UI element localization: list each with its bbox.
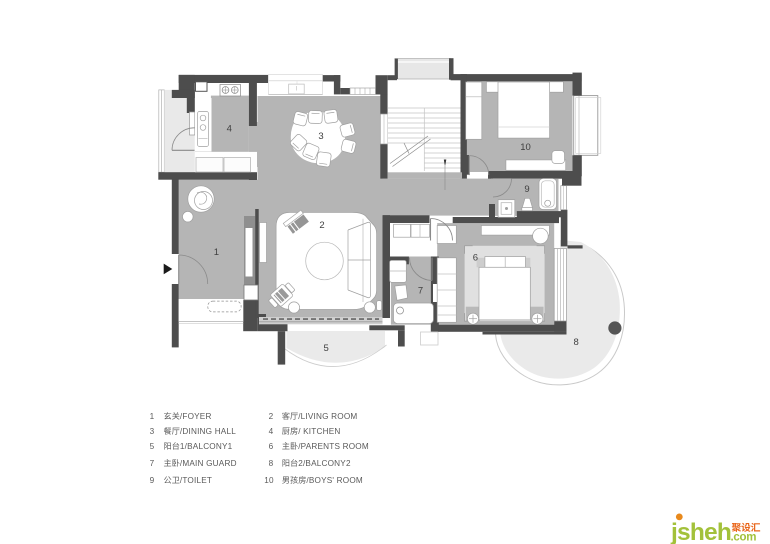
svg-text:2: 2 <box>269 412 274 421</box>
svg-text:7: 7 <box>418 286 423 297</box>
svg-text:8: 8 <box>573 337 578 348</box>
svg-text:9: 9 <box>524 184 529 195</box>
svg-text:1/BALCONY1: 1/BALCONY1 <box>180 442 233 451</box>
svg-text:10: 10 <box>264 476 274 485</box>
svg-text:/FOYER: /FOYER <box>180 412 212 421</box>
svg-text:2: 2 <box>319 220 324 231</box>
svg-text:5: 5 <box>150 442 155 451</box>
svg-text:/PARENTS ROOM: /PARENTS ROOM <box>298 442 369 451</box>
svg-text:3: 3 <box>318 131 323 142</box>
svg-text:/BOYS' ROOM: /BOYS' ROOM <box>306 476 363 485</box>
svg-text:4: 4 <box>269 427 274 436</box>
svg-text:1: 1 <box>214 247 219 258</box>
svg-text:10: 10 <box>520 142 531 153</box>
svg-text:/MAIN GUARD: /MAIN GUARD <box>180 459 237 468</box>
svg-text:.com: .com <box>731 532 757 544</box>
svg-text:6: 6 <box>473 253 478 264</box>
svg-text:/TOILET: /TOILET <box>180 476 212 485</box>
svg-text:3: 3 <box>150 427 155 436</box>
svg-text:2/BALCONY2: 2/BALCONY2 <box>298 459 351 468</box>
svg-text:/DINING HALL: /DINING HALL <box>180 427 236 436</box>
svg-text:8: 8 <box>269 459 274 468</box>
svg-text:9: 9 <box>150 476 155 485</box>
svg-text:6: 6 <box>269 442 274 451</box>
svg-text:4: 4 <box>227 124 232 135</box>
svg-text:5: 5 <box>324 343 329 354</box>
svg-text:/ KITCHEN: / KITCHEN <box>298 427 340 436</box>
svg-text:/LIVING ROOM: /LIVING ROOM <box>298 412 357 421</box>
svg-text:7: 7 <box>150 459 155 468</box>
svg-text:jsheh: jsheh <box>670 519 731 544</box>
svg-text:1: 1 <box>150 412 155 421</box>
